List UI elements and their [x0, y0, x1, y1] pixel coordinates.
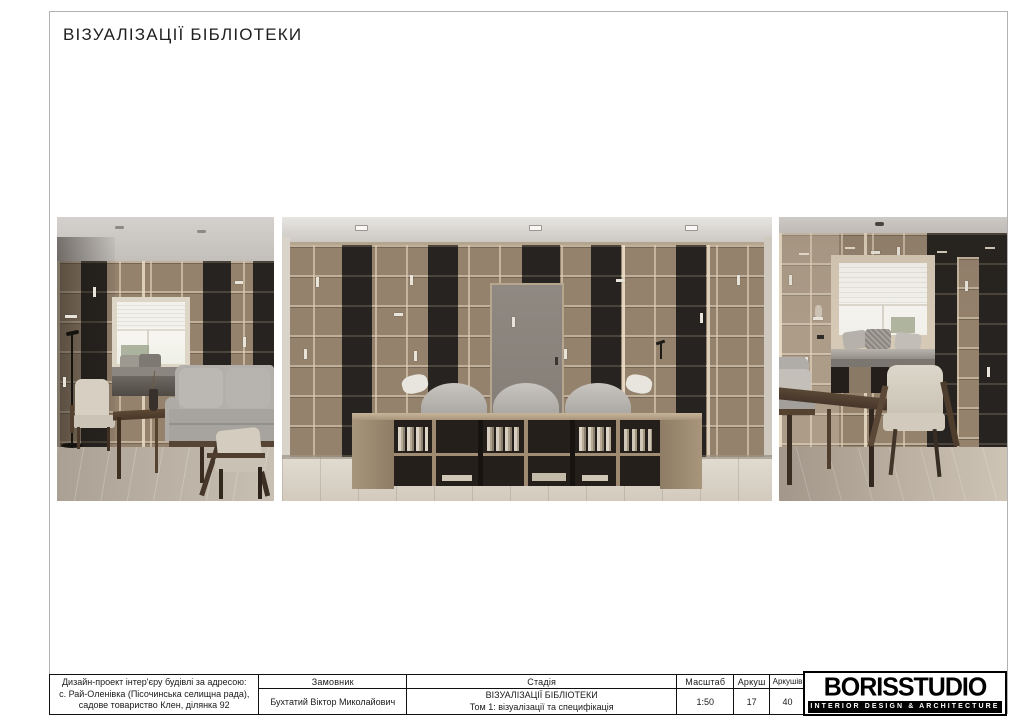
- client-label: Замовник: [259, 675, 406, 689]
- stage-label: Стадія: [407, 675, 676, 689]
- book: [616, 279, 625, 282]
- book: [394, 313, 403, 316]
- roller-blind: [117, 302, 185, 328]
- book: [512, 317, 515, 327]
- dark-cabinet-over-door: [522, 245, 560, 285]
- console-top: [352, 413, 702, 420]
- address-line: Дизайн-проект інтер'єру будівлі за адрес…: [62, 677, 247, 689]
- sheets-total-cell: Аркушів 40: [769, 675, 805, 714]
- armchair-leg: [107, 427, 110, 451]
- project-address-cell: Дизайн-проект інтер'єру будівлі за адрес…: [50, 675, 258, 714]
- console-divider: [524, 420, 528, 486]
- console-divider: [432, 420, 436, 486]
- stage-cell: Стадія ВІЗУАЛІЗАЦІЇ БІБЛІОТЕКИ Том 1: ві…: [406, 675, 676, 714]
- book: [414, 351, 417, 361]
- console-books: [624, 429, 652, 451]
- drawing-sheet: ВІЗУАЛІЗАЦІЇ БІБЛІОТЕКИ: [0, 0, 1024, 724]
- book: [304, 349, 307, 359]
- studio-logo-name: BORISSTUDIO: [824, 673, 987, 700]
- vase: [149, 389, 158, 411]
- scale-value: 1:50: [677, 689, 733, 714]
- console-books: [398, 427, 428, 451]
- window-mullion: [117, 329, 185, 331]
- title-block: Дизайн-проект інтер'єру будівлі за адрес…: [49, 674, 806, 715]
- sofa-back-cushion: [226, 368, 270, 408]
- door-handle: [555, 357, 558, 365]
- book: [316, 277, 319, 287]
- console-side-panel: [660, 417, 702, 489]
- book: [700, 313, 703, 323]
- spotlight-icon: [115, 226, 124, 229]
- side-wall: [764, 237, 772, 469]
- render-library-front: [282, 217, 772, 501]
- flat-book-stack: [442, 475, 472, 481]
- armchair2-arm: [207, 453, 265, 458]
- armchair-leg: [77, 427, 80, 449]
- sofa-back-cushion: [179, 368, 223, 408]
- sheet-value: 17: [734, 689, 769, 714]
- console-side-panel: [352, 417, 394, 489]
- flat-book-stack: [532, 473, 566, 481]
- side-wall: [282, 237, 290, 469]
- table-leg: [155, 417, 158, 473]
- stage-line: ВІЗУАЛІЗАЦІЇ БІБЛІОТЕКИ: [486, 690, 598, 701]
- address-line: с. Рай-Оленівка (Пісочинська селищна рад…: [59, 689, 249, 701]
- scale-label: Масштаб: [677, 675, 733, 689]
- book: [93, 287, 96, 297]
- armchair2-leg: [219, 469, 223, 499]
- sheets-total-label: Аркушів: [770, 675, 805, 689]
- console-divider: [478, 420, 483, 486]
- spotlight-icon: [197, 230, 206, 233]
- client-cell: Замовник Бухтатий Віктор Миколайович: [258, 675, 406, 714]
- sheets-total-value: 40: [770, 689, 805, 714]
- book: [243, 337, 246, 347]
- studio-logo-tagline: INTERIOR DESIGN & ARCHITECTURE: [808, 701, 1002, 713]
- armchair-back: [75, 379, 109, 419]
- console-divider: [616, 420, 620, 486]
- table-leg: [117, 417, 121, 479]
- book: [564, 349, 567, 359]
- scale-cell: Масштаб 1:50: [676, 675, 733, 714]
- stage-line: Том 1: візуалізації та специфікація: [470, 702, 614, 713]
- book: [235, 281, 243, 284]
- spotlight-icon: [355, 225, 368, 231]
- render-library-corner-left: [57, 217, 274, 501]
- flat-book-stack: [582, 475, 608, 481]
- address-line: садове товариство Клен, ділянка 92: [79, 700, 230, 712]
- studio-logo: BORISSTUDIO INTERIOR DESIGN & ARCHITECTU…: [803, 671, 1007, 716]
- spotlight-icon: [529, 225, 542, 231]
- spotlight-icon: [685, 225, 698, 231]
- armchair2-leg: [258, 467, 262, 499]
- console-books: [579, 427, 611, 451]
- console-divider: [570, 420, 575, 486]
- ambient-shade: [779, 217, 1007, 501]
- book: [410, 275, 413, 285]
- console-books: [487, 427, 519, 451]
- render-library-corner-right: [779, 217, 1007, 501]
- book: [65, 315, 77, 318]
- book: [737, 275, 740, 285]
- client-value: Бухтатий Віктор Миколайович: [259, 689, 406, 714]
- sheet-label: Аркуш: [734, 675, 769, 689]
- sofa-seat-seam: [169, 423, 274, 425]
- sheet-number-cell: Аркуш 17: [733, 675, 769, 714]
- page-title: ВІЗУАЛІЗАЦІЇ БІБЛІОТЕКИ: [63, 25, 302, 45]
- stage-value: ВІЗУАЛІЗАЦІЇ БІБЛІОТЕКИ Том 1: візуаліза…: [407, 689, 676, 714]
- book: [63, 377, 66, 387]
- armchair-frame: [70, 405, 74, 433]
- shelf-lamp-icon: [660, 343, 662, 359]
